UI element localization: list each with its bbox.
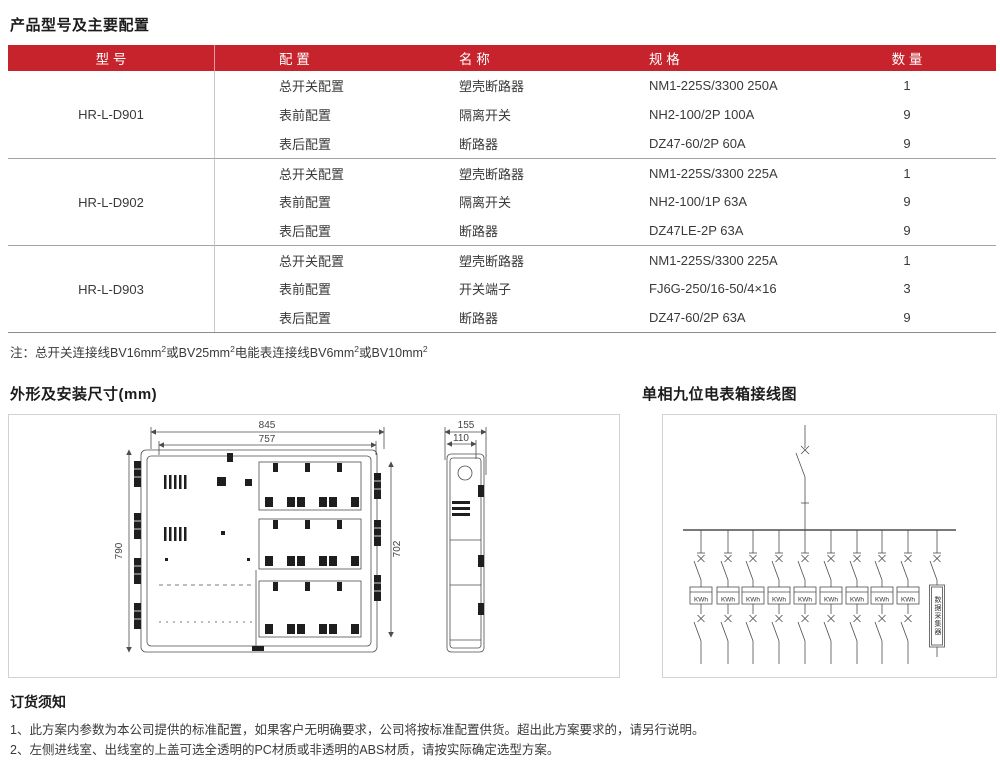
qty-cell: 9 (818, 187, 996, 216)
spec-cell: NH2-100/2P 100A (585, 100, 818, 129)
meter-label: KWh (875, 597, 889, 604)
dimensions-title: 外形及安装尺寸(mm) (10, 383, 632, 404)
side-view-drawing (445, 427, 486, 652)
spec-cell: NM1-225S/3300 225A (585, 158, 818, 187)
qty-cell: 1 (818, 158, 996, 187)
config-cell: 表后配置 (215, 129, 395, 158)
dim-inner-width: 757 (259, 434, 276, 445)
meter-compartment (259, 519, 361, 569)
header-qty: 数 量 (818, 45, 996, 71)
meter-branch: KWh (846, 530, 868, 664)
qty-cell: 1 (818, 245, 996, 274)
config-cell: 表前配置 (215, 187, 395, 216)
dim-inner-height: 702 (392, 540, 403, 557)
config-table-header: 型 号 配 置 名 称 规 格 数 量 (8, 45, 996, 71)
config-cell: 表后配置 (215, 216, 395, 245)
meter-branch: KWh (690, 530, 712, 664)
page-title: 产品型号及主要配置 (10, 14, 992, 35)
name-cell: 塑壳断路器 (395, 71, 585, 100)
config-table: 型 号 配 置 名 称 规 格 数 量 HR-L-D901总开关配置塑壳断路器N… (8, 45, 996, 333)
latch-blocks (374, 473, 381, 601)
qty-cell: 3 (818, 274, 996, 303)
meter-label: KWh (772, 597, 786, 604)
wiring-title: 单相九位电表箱接线图 (642, 383, 992, 404)
header-spec: 规 格 (585, 45, 818, 71)
dimensions-section: 外形及安装尺寸(mm) (8, 377, 632, 678)
table-note: 注：总开关连接线BV16mm2或BV25mm2电能表连接线BV6mm2或BV10… (10, 342, 992, 361)
spec-cell: DZ47-60/2P 60A (585, 129, 818, 158)
vent-slots (164, 475, 252, 561)
dim-outer-width: 845 (259, 420, 276, 431)
config-cell: 表前配置 (215, 100, 395, 129)
dimensions-panel: 845 757 790 702 (8, 414, 620, 678)
dim-height: 790 (114, 542, 125, 559)
hinge-blocks (134, 461, 141, 629)
header-name: 名 称 (395, 45, 585, 71)
config-cell: 表后配置 (215, 303, 395, 332)
ordering-section: 订货须知 1、此方案内参数为本公司提供的标准配置，如果客户无明确要求，公司将按标… (10, 692, 992, 760)
collector-box-label: 数据采集器 (930, 587, 944, 645)
meter-label: KWh (824, 597, 838, 604)
meter-label: KWh (721, 597, 735, 604)
catalog-page: 产品型号及主要配置 型 号 配 置 名 称 规 格 数 量 HR-L-D901总… (0, 0, 1000, 760)
spec-cell: NM1-225S/3300 225A (585, 245, 818, 274)
qty-cell: 9 (818, 100, 996, 129)
model-cell: HR-L-D903 (8, 245, 215, 332)
ordering-title: 订货须知 (10, 692, 992, 712)
wiring-diagram: KWh KWh (663, 415, 996, 677)
name-cell: 隔离开关 (395, 100, 585, 129)
meter-label: KWh (901, 597, 915, 604)
meter-label: KWh (746, 597, 760, 604)
meter-branch: KWh (871, 530, 893, 664)
ordering-item: 2、左侧进线室、出线室的上盖可选全透明的PC材质或非透明的ABS材质，请按实际确… (10, 740, 992, 760)
meter-branch: KWh (717, 530, 739, 664)
model-cell: HR-L-D901 (8, 71, 215, 158)
config-cell: 总开关配置 (215, 158, 395, 187)
meter-label: KWh (694, 597, 708, 604)
dim-inner-depth: 110 (453, 433, 469, 444)
ordering-item: 1、此方案内参数为本公司提供的标准配置，如果客户无明确要求，公司将按标准配置供货… (10, 720, 992, 740)
dim-depth: 155 (458, 420, 475, 431)
name-cell: 断路器 (395, 129, 585, 158)
main-breaker-symbol (796, 425, 809, 530)
name-cell: 隔离开关 (395, 187, 585, 216)
config-table-body: HR-L-D901总开关配置塑壳断路器NM1-225S/3300 250A1表前… (8, 71, 996, 333)
config-cell: 总开关配置 (215, 245, 395, 274)
model-cell: HR-L-D902 (8, 158, 215, 245)
wiring-panel: KWh KWh (662, 414, 997, 678)
qty-cell: 9 (818, 303, 996, 332)
config-cell: 总开关配置 (215, 71, 395, 100)
header-config: 配 置 (215, 45, 395, 71)
spec-cell: FJ6G-250/16-50/4×16 (585, 274, 818, 303)
qty-cell: 9 (818, 216, 996, 245)
meter-label: KWh (798, 597, 812, 604)
config-cell: 表前配置 (215, 274, 395, 303)
meter-branch: KWh (897, 530, 919, 664)
dimension-drawing: 845 757 790 702 (9, 415, 619, 677)
note-label: 注： (10, 346, 35, 360)
spec-cell: NM1-225S/3300 250A (585, 71, 818, 100)
spec-cell: DZ47-60/2P 63A (585, 303, 818, 332)
name-cell: 塑壳断路器 (395, 245, 585, 274)
meter-branch: KWh (742, 530, 764, 664)
wiring-section: 单相九位电表箱接线图 (640, 377, 992, 678)
name-cell: 断路器 (395, 216, 585, 245)
name-cell: 塑壳断路器 (395, 158, 585, 187)
meter-compartment (259, 462, 361, 510)
front-view-drawing (129, 427, 391, 652)
diagram-sections: 外形及安装尺寸(mm) (8, 377, 992, 678)
meter-label: KWh (850, 597, 864, 604)
meter-branch: KWh (820, 530, 842, 664)
name-cell: 断路器 (395, 303, 585, 332)
spec-cell: DZ47LE-2P 63A (585, 216, 818, 245)
meter-branch: KWh (768, 530, 790, 664)
spec-cell: NH2-100/1P 63A (585, 187, 818, 216)
meter-compartment (259, 581, 361, 637)
meter-branch: KWh (794, 530, 816, 664)
qty-cell: 9 (818, 129, 996, 158)
qty-cell: 1 (818, 71, 996, 100)
name-cell: 开关端子 (395, 274, 585, 303)
header-model: 型 号 (8, 45, 215, 71)
